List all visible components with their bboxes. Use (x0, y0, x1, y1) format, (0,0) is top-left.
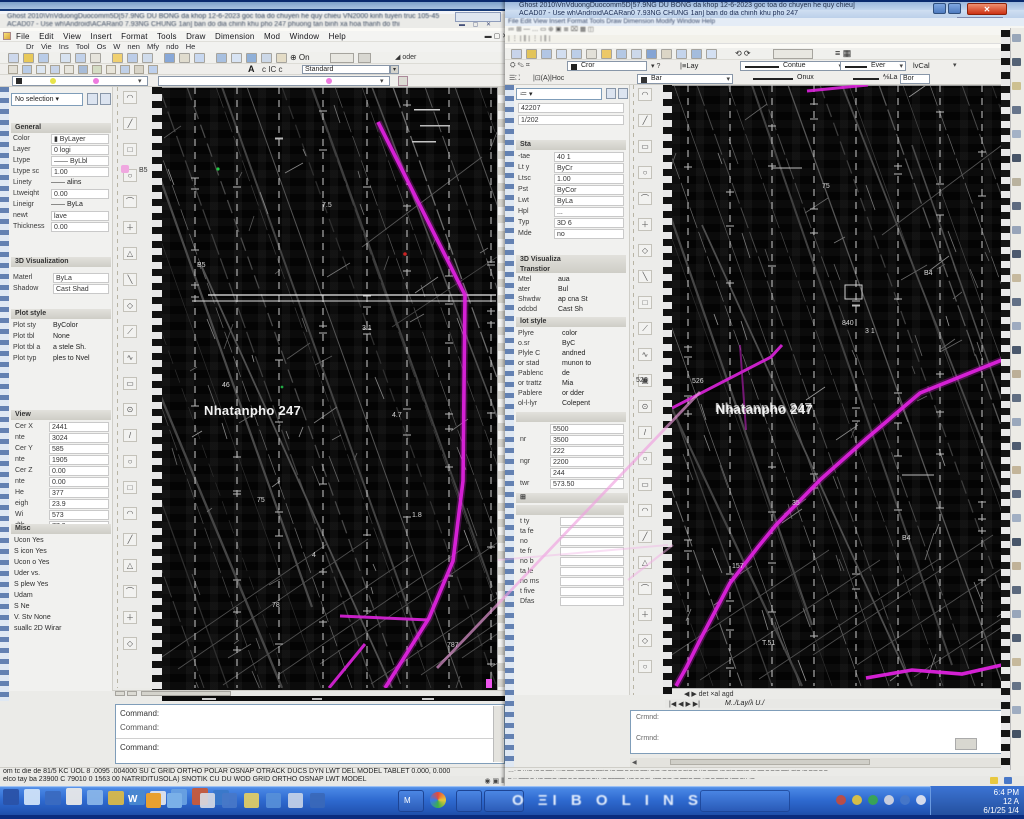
svg-text:Nhatanpho 247: Nhatanpho 247 (204, 403, 301, 418)
svg-text:T.51: T.51 (762, 640, 775, 647)
svg-text:787: 787 (447, 642, 459, 649)
svg-text:35: 35 (792, 500, 800, 507)
svg-text:1.8: 1.8 (412, 512, 422, 519)
svg-text:75: 75 (257, 497, 265, 504)
svg-text:4.7: 4.7 (392, 412, 402, 419)
svg-text:4: 4 (312, 552, 316, 559)
svg-text:3.1: 3.1 (362, 325, 372, 332)
svg-text:75: 75 (822, 183, 830, 190)
svg-text:Nhatanpho 247: Nhatanpho 247 (715, 400, 812, 415)
svg-text:3 1: 3 1 (865, 328, 875, 335)
svg-text:B5: B5 (197, 262, 206, 269)
svg-text:7.5: 7.5 (322, 202, 332, 209)
svg-text:B4: B4 (902, 535, 911, 542)
svg-text:B4: B4 (924, 270, 933, 277)
svg-text:78: 78 (272, 602, 280, 609)
svg-text:46: 46 (222, 382, 230, 389)
svg-text:526: 526 (692, 378, 704, 385)
svg-text:840: 840 (842, 320, 854, 327)
svg-text:157: 157 (732, 563, 744, 570)
